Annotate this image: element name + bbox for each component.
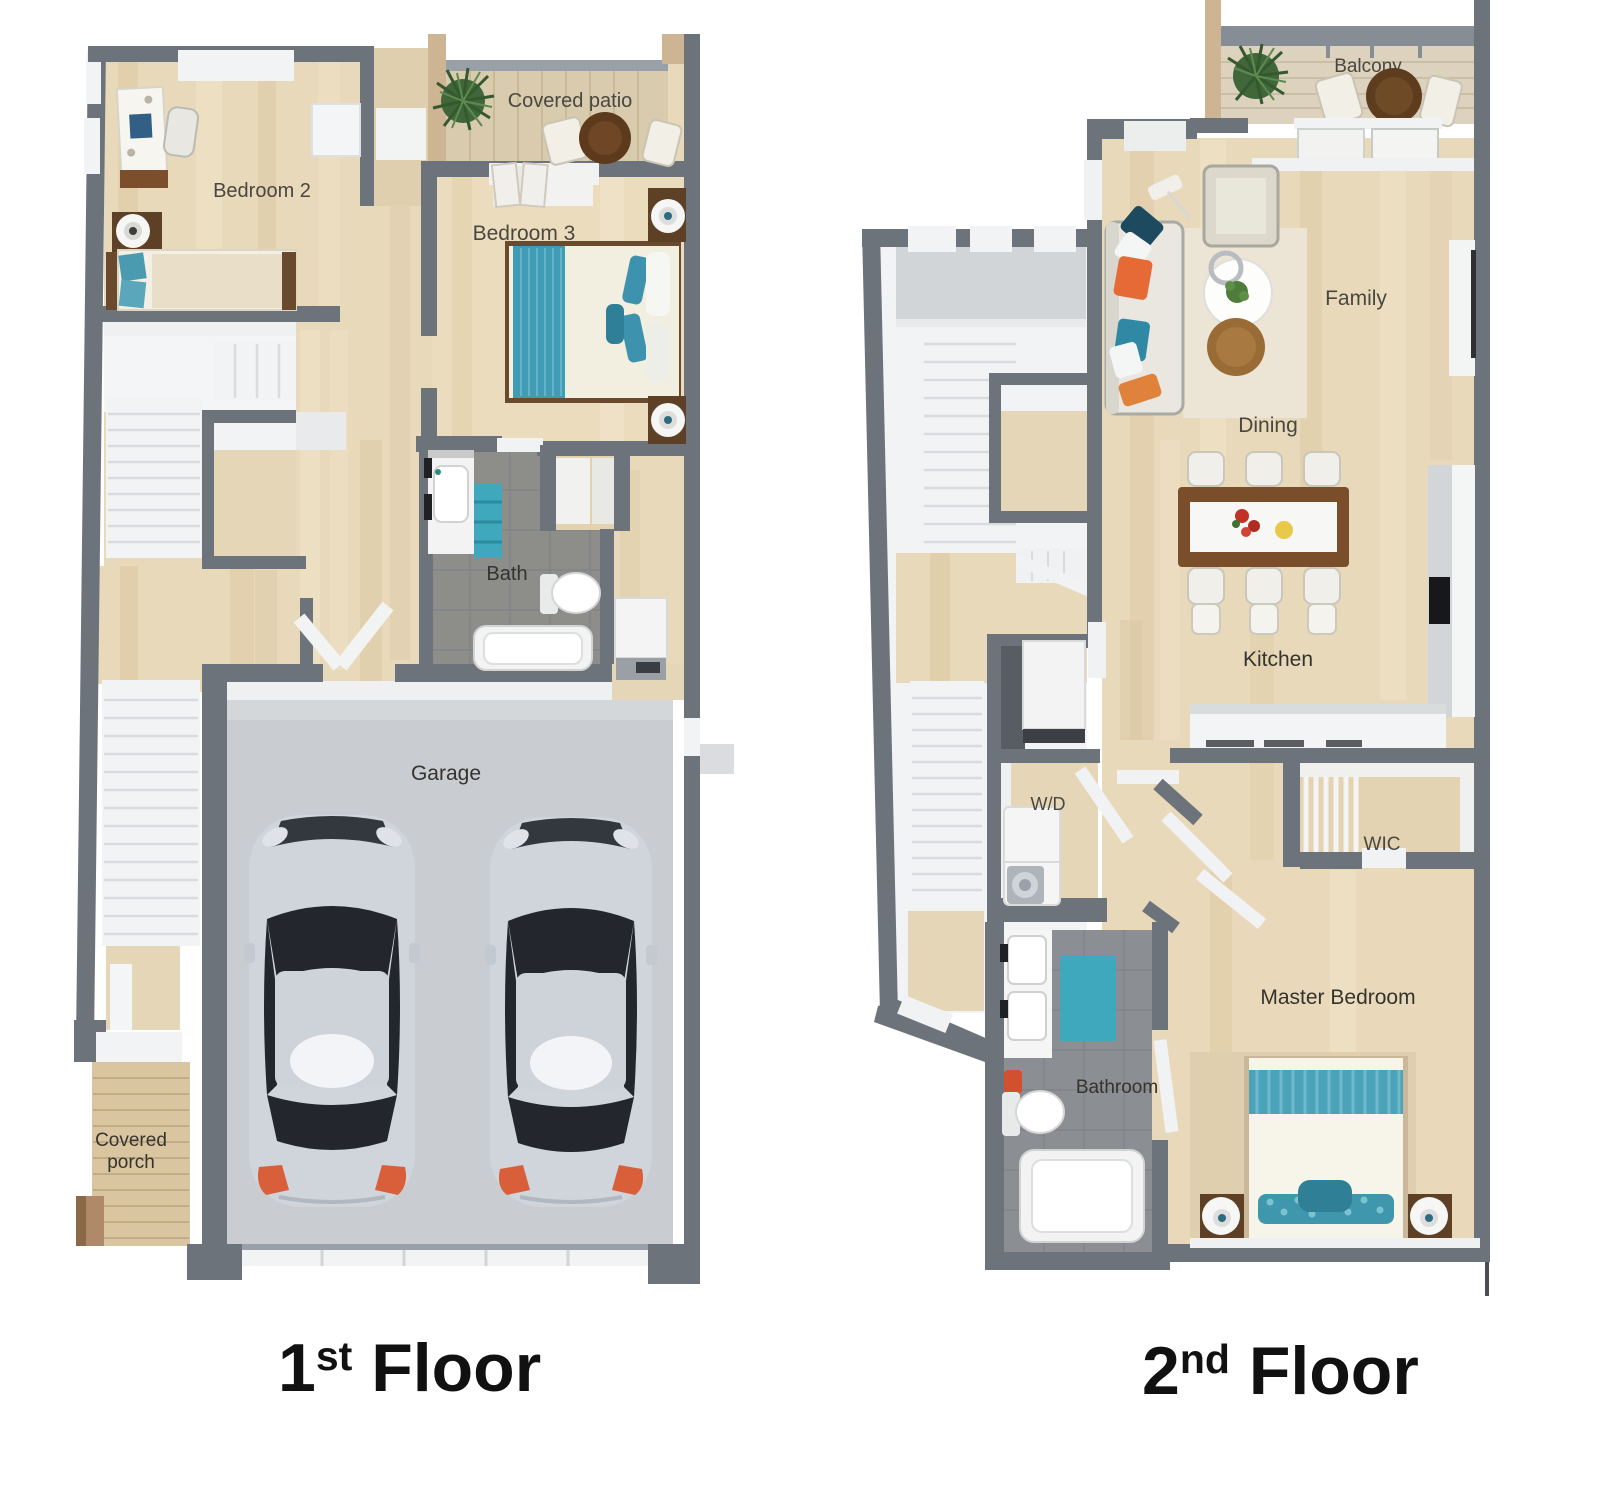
svg-text:Covered: Covered [95, 1130, 167, 1151]
svg-text:Garage: Garage [411, 762, 481, 785]
svg-text:W/D: W/D [1031, 794, 1066, 814]
svg-text:Bathroom: Bathroom [1076, 1077, 1158, 1098]
svg-text:WIC: WIC [1364, 834, 1401, 855]
svg-text:Kitchen: Kitchen [1243, 648, 1313, 671]
svg-text:Family: Family [1325, 287, 1387, 310]
svg-text:Dining: Dining [1238, 414, 1298, 437]
svg-text:porch: porch [107, 1152, 155, 1173]
svg-text:Master Bedroom: Master Bedroom [1260, 986, 1415, 1009]
svg-text:Covered patio: Covered patio [508, 90, 633, 112]
svg-text:Bedroom 2: Bedroom 2 [213, 180, 311, 202]
svg-text:Bath: Bath [486, 563, 527, 585]
